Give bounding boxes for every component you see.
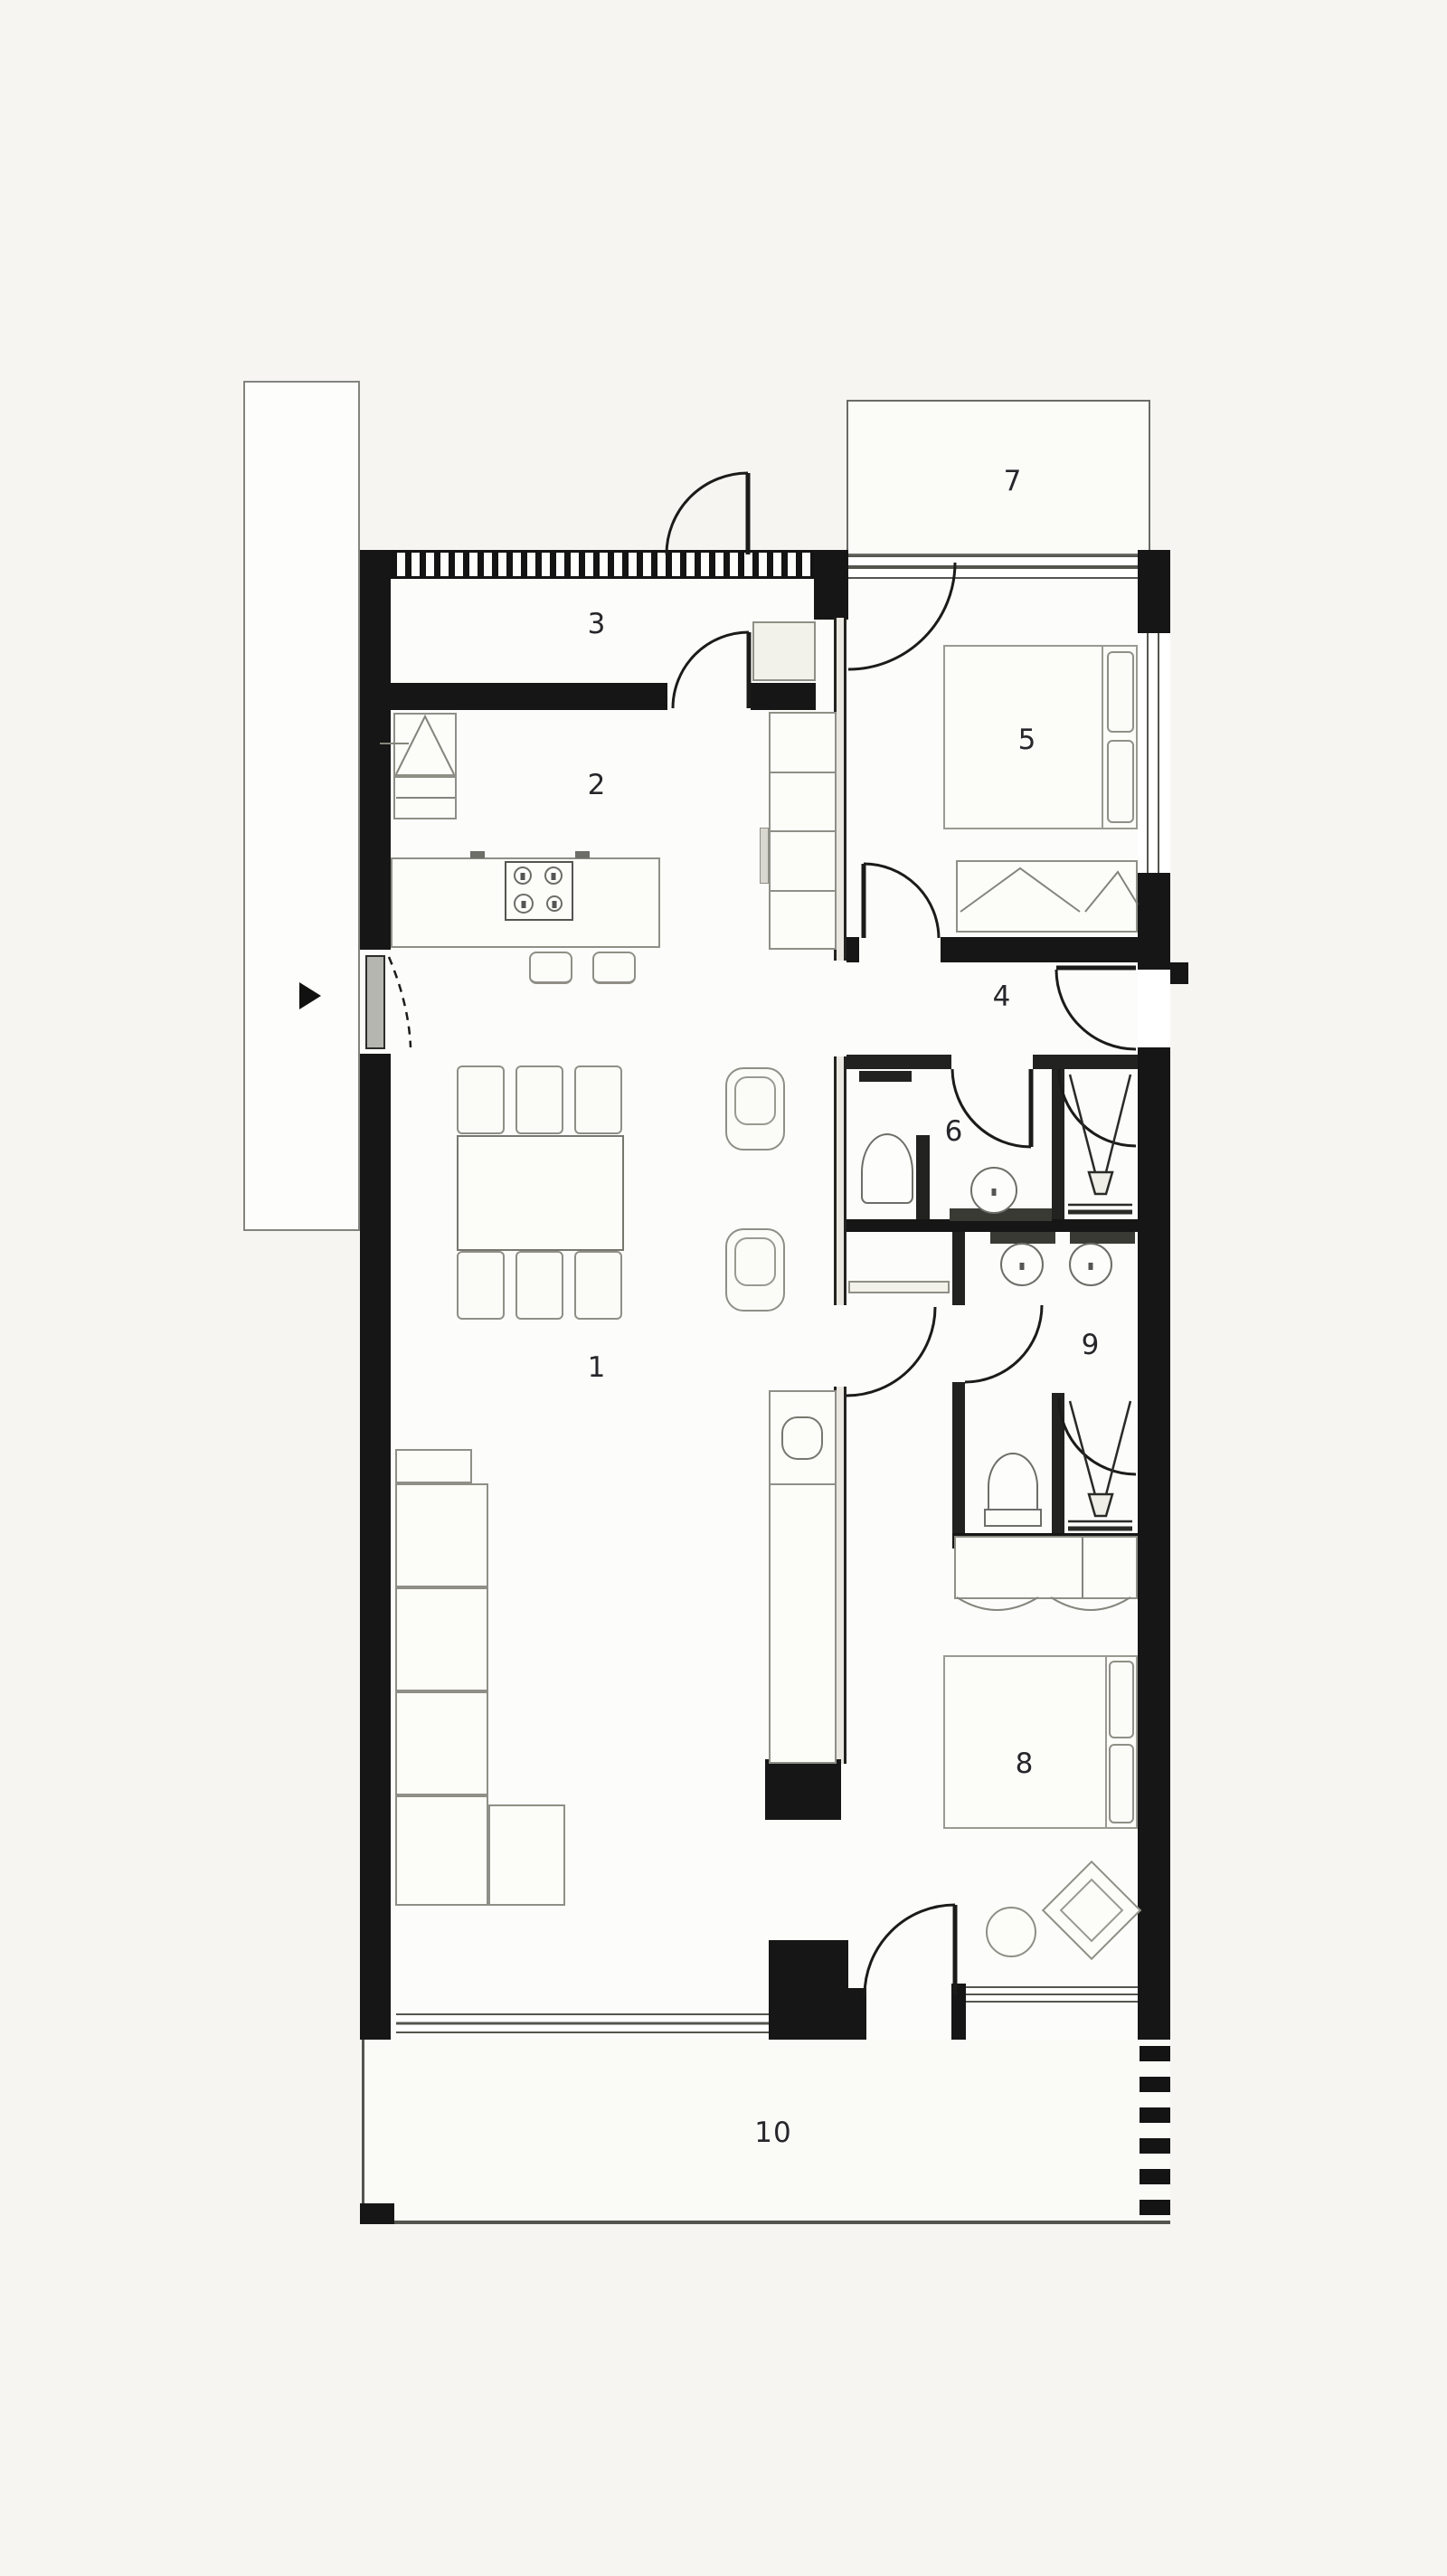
shower-1-icon bbox=[1068, 1075, 1132, 1212]
room-label-bedroom-1: 5 bbox=[1018, 724, 1037, 756]
door-arc-bathroom-2 bbox=[965, 1305, 1042, 1382]
door-arc-bedroom-1 bbox=[864, 864, 939, 938]
room-label-bedroom-2: 8 bbox=[1016, 1747, 1035, 1780]
room-label-terrace-bottom: 10 bbox=[754, 2117, 791, 2149]
door-arc-corridor bbox=[846, 1307, 935, 1396]
door-swing-dashed-left-entry bbox=[389, 957, 411, 1047]
floor-plan-canvas: 1 2 3 4 5 6 7 8 9 10 bbox=[0, 0, 1447, 2576]
room-label-hallway: 4 bbox=[993, 980, 1012, 1013]
room-label-bathroom-1: 6 bbox=[945, 1115, 964, 1148]
room-label-kitchen: 2 bbox=[588, 769, 607, 801]
door-arc-top-entry bbox=[667, 473, 748, 554]
room-label-terrace-top: 7 bbox=[1004, 465, 1023, 497]
door-arc-entry-hall bbox=[673, 632, 749, 708]
room-label-bathroom-2: 9 bbox=[1082, 1329, 1101, 1361]
door-arc-bedroom-2 bbox=[865, 1905, 955, 1995]
door-arc-bedroom-1-glazing bbox=[848, 563, 955, 669]
appliance-detail bbox=[380, 716, 455, 798]
door-arc-bathroom-1 bbox=[952, 1069, 1031, 1147]
dresser-2-detail bbox=[957, 1538, 1130, 1610]
door-arc-shower-2 bbox=[1059, 1397, 1136, 1474]
dresser-1-detail bbox=[960, 868, 1138, 912]
room-label-entry-hall: 3 bbox=[588, 608, 607, 640]
door-swing-overlay bbox=[0, 0, 1447, 2576]
door-arc-hallway-exterior bbox=[1056, 970, 1136, 1049]
room-label-living: 1 bbox=[588, 1351, 607, 1384]
